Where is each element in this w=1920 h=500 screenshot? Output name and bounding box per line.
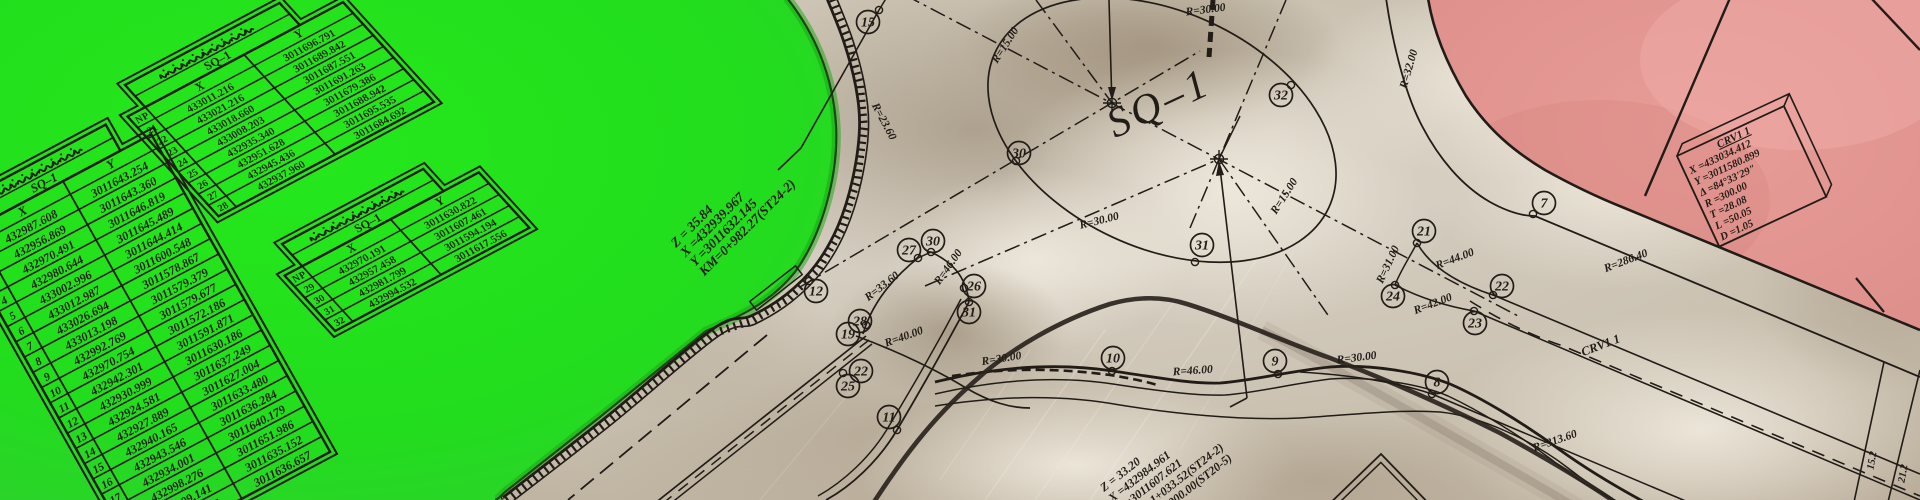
svg-text:12: 12 [809, 285, 823, 300]
svg-text:24: 24 [1385, 290, 1400, 305]
svg-text:19: 19 [841, 328, 855, 343]
svg-text:11: 11 [882, 411, 895, 426]
svg-text:31: 31 [1194, 239, 1209, 254]
svg-text:9: 9 [1272, 355, 1279, 370]
svg-text:10: 10 [1106, 352, 1120, 367]
svg-text:25: 25 [840, 380, 855, 395]
svg-text:8: 8 [1434, 376, 1441, 391]
svg-text:26: 26 [966, 280, 981, 295]
svg-text:31: 31 [961, 306, 976, 321]
svg-text:7: 7 [1541, 197, 1549, 212]
svg-text:23: 23 [1467, 317, 1482, 332]
svg-text:32: 32 [1273, 89, 1288, 104]
svg-text:15: 15 [861, 16, 875, 31]
svg-text:30: 30 [925, 235, 940, 250]
svg-text:21: 21 [1416, 225, 1431, 240]
